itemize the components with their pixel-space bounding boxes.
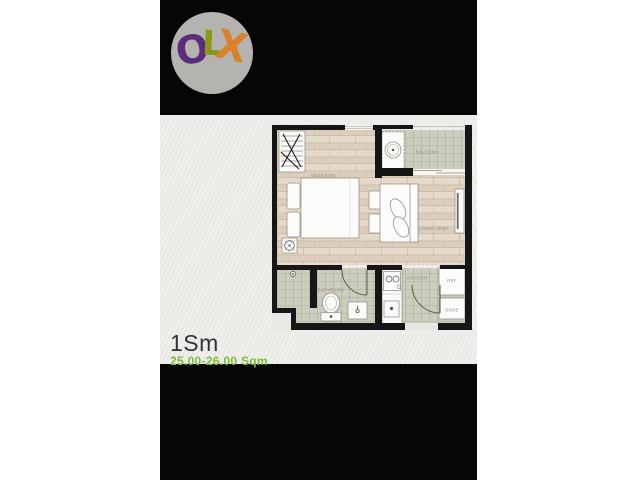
pillow [287, 183, 300, 209]
room-label-balcony: BALCONY [416, 150, 438, 155]
bathroom-sink [348, 302, 367, 319]
floor-plan: BEDROOM BALCONY LIVING AREA BATHROOM KIT… [270, 122, 474, 332]
room-label-shoe: SHOE [445, 308, 458, 313]
kitchen-counter [382, 268, 402, 324]
unit-type-label: 1Sm [170, 330, 219, 357]
stove [384, 272, 401, 291]
nightstand-lamp [282, 238, 297, 253]
bedroom-window [345, 125, 373, 130]
wardrobe [279, 131, 305, 172]
room-label-kitchen: KITCHEN [407, 276, 428, 281]
page-canvas: O L X [0, 0, 640, 480]
shower-head [290, 271, 295, 276]
room-label-ref: REF [447, 278, 457, 283]
entrance-threshold [405, 323, 438, 330]
room-label-living: LIVING AREA [419, 226, 449, 231]
tv-console [455, 189, 464, 233]
kitchen-sink [384, 301, 399, 317]
room-label-bathroom: BATHROOM [318, 288, 345, 293]
balcony-sliding-door [413, 169, 465, 175]
floorplan-paper: BEDROOM BALCONY LIVING AREA BATHROOM KIT… [160, 115, 477, 364]
bed [287, 178, 359, 238]
plan-notch [272, 313, 291, 332]
listing-photo: O L X [160, 0, 477, 480]
unit-area-label: 25.00-26.00 Sqm [170, 354, 268, 368]
pillow [287, 212, 300, 237]
room-label-bedroom: BEDROOM [311, 173, 335, 178]
sofa [380, 184, 418, 242]
balcony-railing [413, 125, 465, 129]
washing-machine [382, 132, 404, 169]
olx-logo: O L X [171, 12, 253, 94]
toilet [321, 293, 341, 321]
